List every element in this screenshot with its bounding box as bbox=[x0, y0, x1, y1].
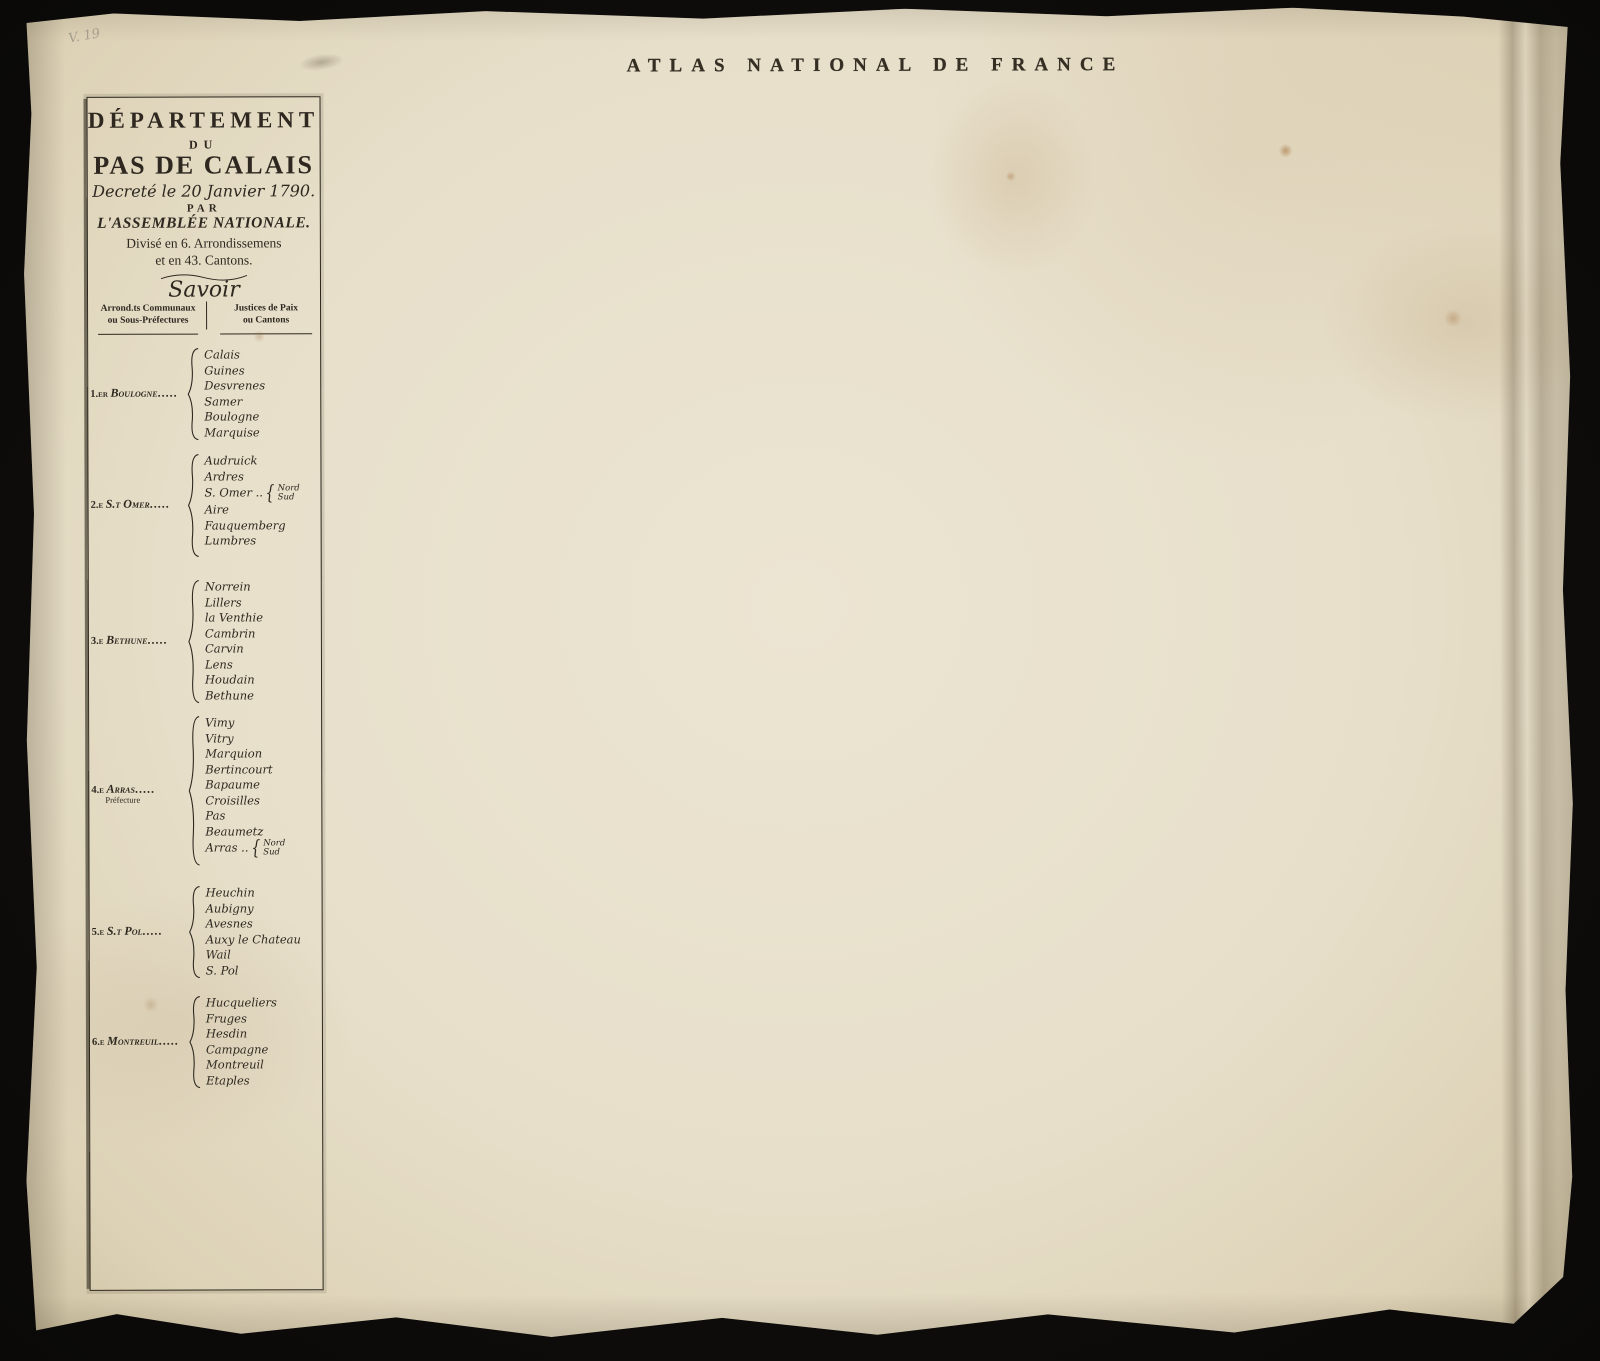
canton-item: Houdain bbox=[205, 672, 263, 688]
canton-item: Lumbres bbox=[205, 533, 300, 549]
decree-line: Decreté le 20 Janvier 1790. bbox=[88, 181, 320, 201]
brace-icon bbox=[188, 996, 202, 1094]
canton-item: S. Pol bbox=[206, 963, 301, 979]
canton-item: Bapaume bbox=[205, 777, 285, 793]
canton-item: Aubigny bbox=[206, 901, 301, 917]
brace-icon bbox=[187, 716, 201, 871]
brace-icon bbox=[186, 348, 200, 446]
column-header-cantons: Justices de Paixou Cantons bbox=[216, 303, 316, 326]
canton-item: Ardres bbox=[204, 469, 299, 485]
column-header-arrondissements: Arrond.ts Communauxou Sous-Préfectures bbox=[94, 304, 202, 327]
arrondissement-label: 6.e Montreuil..... bbox=[92, 1033, 184, 1048]
canton-item: Hucqueliers bbox=[206, 995, 277, 1011]
column-divider bbox=[206, 302, 207, 330]
canton-item: Croisilles bbox=[205, 793, 285, 809]
canton-item: Etaples bbox=[206, 1073, 277, 1089]
canton-item: Marquise bbox=[204, 425, 265, 441]
legend-panel: DÉPARTEMENT DU PAS DE CALAIS Decreté le … bbox=[86, 96, 323, 1291]
canton-item: Beaumetz bbox=[205, 824, 285, 840]
canton-item: Fauquemberg bbox=[205, 518, 300, 534]
canton-item: Lens bbox=[205, 657, 263, 673]
canton-item: Avesnes bbox=[206, 916, 301, 932]
canton-list: AudruickArdresS. Omer ..{NordSudAireFauq… bbox=[204, 453, 299, 549]
arrondissement-label: 4.e Arras.....Préfecture bbox=[91, 782, 183, 805]
canton-list: NorreinLillersla VenthieCambrinCarvinLen… bbox=[205, 579, 263, 703]
arrondissement-group: 2.e S.t Omer.....AudruickArdresS. Omer .… bbox=[88, 453, 320, 557]
brace-icon bbox=[187, 580, 201, 709]
canton-list: HucqueliersFrugesHesdinCampagneMontreuil… bbox=[206, 995, 277, 1088]
canton-item: Carvin bbox=[205, 641, 263, 657]
arrondissement-group: 5.e S.t Pol.....HeuchinAubignyAvesnesAux… bbox=[90, 885, 322, 979]
canton-item: Cambrin bbox=[205, 626, 263, 642]
dept-name-line: PAS DE CALAIS bbox=[88, 150, 320, 181]
canton-item: la Venthie bbox=[205, 610, 263, 626]
canton-item: Fruges bbox=[206, 1011, 277, 1027]
canton-item: Bethune bbox=[205, 688, 263, 704]
canton-list: VimyVitryMarquionBertincourtBapaumeCrois… bbox=[205, 715, 285, 857]
canton-item: S. Omer ..{NordSud bbox=[205, 484, 300, 502]
arrondissement-group: 1.er Boulogne.....CalaisGuinesDesvrenesS… bbox=[88, 347, 320, 441]
canton-item: Pas bbox=[205, 808, 285, 824]
canton-list: HeuchinAubignyAvesnesAuxy le ChateauWail… bbox=[206, 885, 301, 978]
division-line-2: et en 43. Cantons. bbox=[88, 252, 320, 269]
canton-item: Audruick bbox=[204, 453, 299, 469]
brace-icon bbox=[186, 454, 200, 563]
canton-item: Arras ..{NordSud bbox=[205, 839, 285, 857]
brace-icon bbox=[188, 886, 202, 984]
canton-item: Norrein bbox=[205, 579, 263, 595]
savoir-heading: Savoir bbox=[88, 277, 320, 303]
column-rule-left bbox=[98, 334, 198, 335]
division-line-1: Divisé en 6. Arrondissemens bbox=[88, 235, 320, 252]
paper-sheet: V. 19 ATLAS NATIONAL DE FRANCE DÉPARTEME… bbox=[20, 3, 1575, 1341]
arrondissement-label: 2.e S.t Omer..... bbox=[91, 497, 183, 512]
canton-item: Bertincourt bbox=[205, 762, 285, 778]
canton-item: Guines bbox=[204, 363, 265, 379]
canton-item: Marquion bbox=[205, 746, 285, 762]
canton-item: Campagne bbox=[206, 1042, 277, 1058]
column-rule-right bbox=[220, 333, 312, 334]
par-line: PAR bbox=[88, 202, 320, 215]
canton-item: Heuchin bbox=[206, 885, 301, 901]
canton-item: Vitry bbox=[205, 731, 285, 747]
assembly-line: L'ASSEMBLÉE NATIONALE. bbox=[88, 214, 320, 233]
canton-item: Lillers bbox=[205, 595, 263, 611]
canton-item: Auxy le Chateau bbox=[206, 932, 301, 948]
arrondissement-group: 4.e Arras.....PréfectureVimyVitryMarquio… bbox=[89, 715, 321, 866]
canton-list: CalaisGuinesDesvrenesSamerBoulogneMarqui… bbox=[204, 347, 265, 440]
canton-item: Hesdin bbox=[206, 1026, 277, 1042]
photo-backdrop: V. 19 ATLAS NATIONAL DE FRANCE DÉPARTEME… bbox=[0, 0, 1600, 1361]
canton-item: Montreuil bbox=[206, 1057, 277, 1073]
atlas-series-title: ATLAS NATIONAL DE FRANCE bbox=[575, 54, 1175, 78]
canton-item: Calais bbox=[204, 347, 265, 363]
canton-item: Desvrenes bbox=[204, 378, 265, 394]
arrondissement-label: 1.er Boulogne..... bbox=[90, 385, 182, 400]
canton-item: Wail bbox=[206, 947, 301, 963]
arrondissement-label: 5.e S.t Pol..... bbox=[92, 923, 184, 938]
canton-item: Vimy bbox=[205, 715, 285, 731]
canton-item: Boulogne bbox=[204, 409, 265, 425]
arrondissement-list: 1.er Boulogne.....CalaisGuinesDesvrenesS… bbox=[87, 97, 319, 98]
canton-item: Samer bbox=[204, 394, 265, 410]
arrondissement-label: 3.e Bethune..... bbox=[91, 633, 183, 648]
dept-title-line: DÉPARTEMENT bbox=[88, 107, 320, 134]
arrondissement-group: 6.e Montreuil.....HucqueliersFrugesHesdi… bbox=[90, 995, 322, 1089]
arrondissement-group: 3.e Bethune.....NorreinLillersla Venthie… bbox=[89, 579, 321, 704]
canton-item: Aire bbox=[205, 502, 300, 518]
